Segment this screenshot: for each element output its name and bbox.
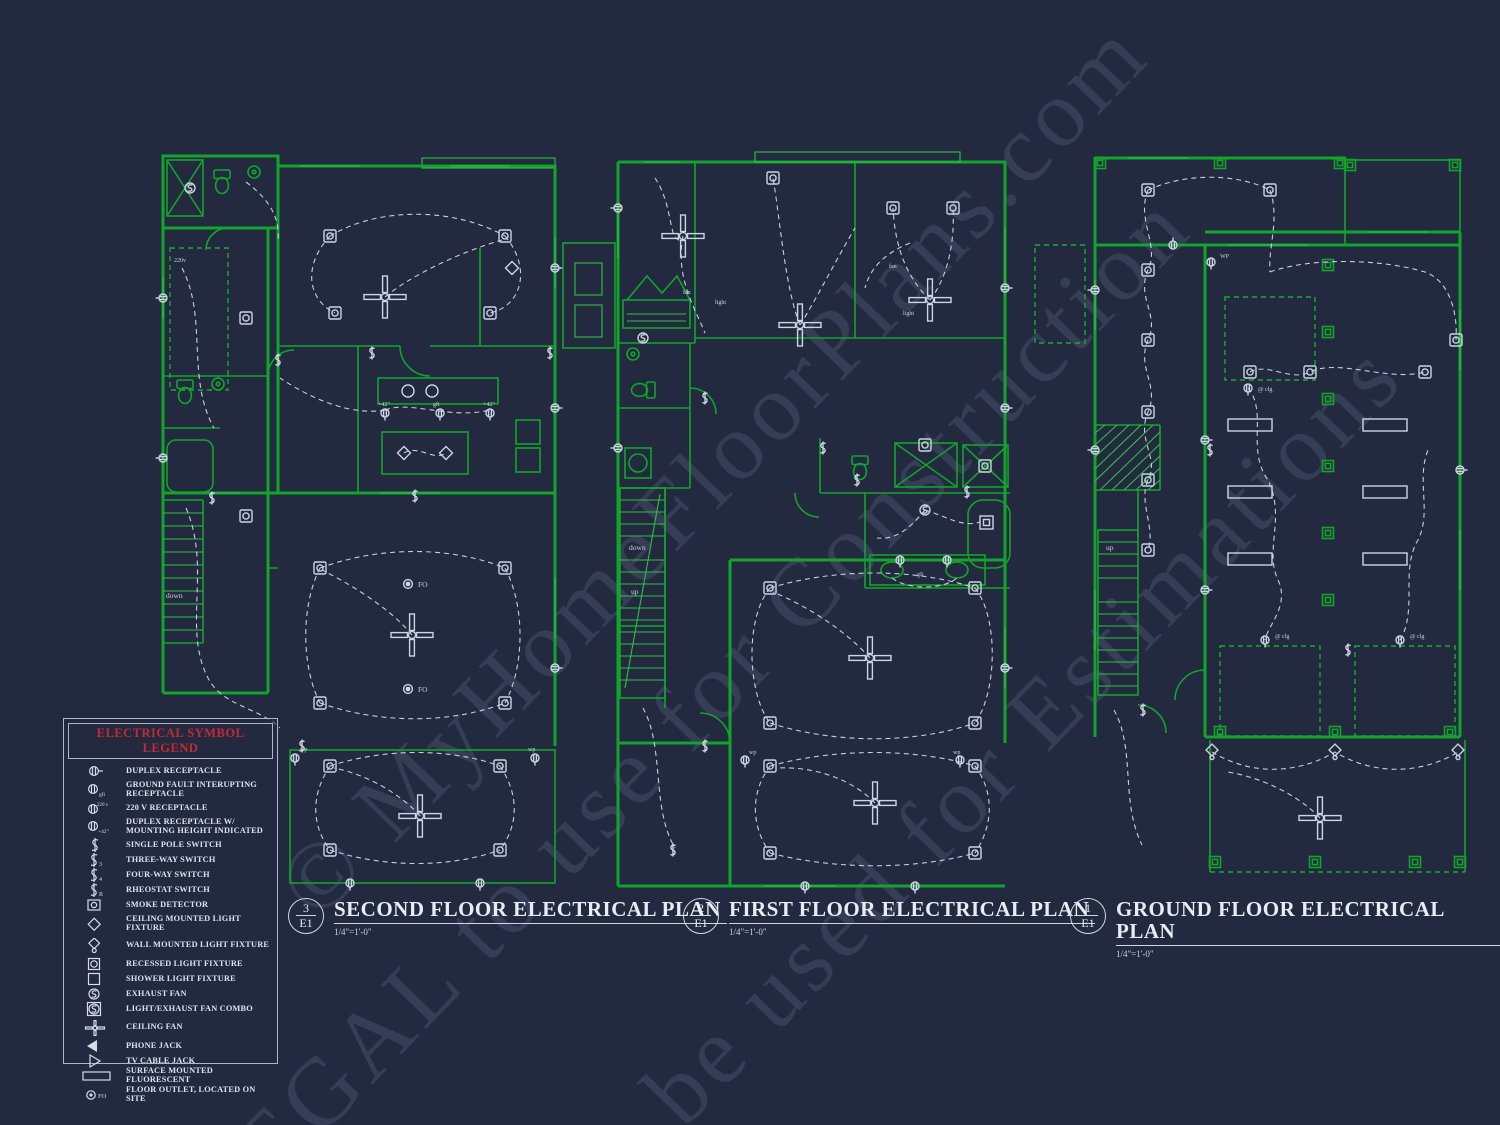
legend-item: 3 THREE-WAY SWITCH xyxy=(68,853,273,867)
legend-item: R RHEOSTAT SWITCH xyxy=(68,883,273,897)
svg-text:+42": +42" xyxy=(98,829,109,835)
legend-item: DUPLEX RECEPTACLE xyxy=(68,764,273,778)
ground-floor-wiring xyxy=(1114,177,1458,845)
legend-item: SMOKE DETECTOR xyxy=(68,898,273,912)
first-floor-plan: down up xyxy=(555,148,1015,898)
legend-item: 4 FOUR-WAY SWITCH xyxy=(68,868,273,882)
four-way-switch-icon: 4 xyxy=(68,867,126,883)
wall-light-icon xyxy=(68,938,126,954)
light-exhaust-fan-combo-icon xyxy=(68,1001,126,1017)
legend-item: EXHAUST FAN xyxy=(68,987,273,1001)
svg-text:gfi: gfi xyxy=(99,791,106,798)
220v-receptacle-icon: 220 v xyxy=(68,800,126,816)
first-floor-title-block: 2 E1 FIRST FLOOR ELECTRICAL PLAN 1/4"=1'… xyxy=(683,898,1095,937)
svg-text:FO: FO xyxy=(418,580,428,589)
svg-text:@ clg: @ clg xyxy=(1410,634,1424,640)
tv-cable-jack-icon xyxy=(68,1053,126,1069)
ground-floor-walls xyxy=(1035,158,1465,872)
svg-text:wp: wp xyxy=(953,750,960,756)
svg-text:FO: FO xyxy=(98,1093,107,1100)
exhaust-fan-icon xyxy=(68,986,126,1002)
legend-item: +42" DUPLEX RECEPTACLE W/ MOUNTING HEIGH… xyxy=(68,816,273,837)
svg-text:fan: fan xyxy=(683,289,691,296)
svg-text:220 v: 220 v xyxy=(97,803,109,808)
electrical-plan-sheet: © MyHomeFloorPlans.com ILLEGAL to use fo… xyxy=(0,0,1500,1125)
second-floor-title-block: 3 E1 SECOND FLOOR ELECTRICAL PLAN 1/4"=1… xyxy=(288,898,727,937)
ceiling-fan-icon xyxy=(68,1020,126,1036)
plan-title: SECOND FLOOR ELECTRICAL PLAN xyxy=(334,898,727,924)
legend-item: 220 v 220 V RECEPTACLE xyxy=(68,801,273,815)
legend-item: CEILING MOUNTED LIGHT FIXTURE xyxy=(68,913,273,934)
plan-scale: 1/4"=1'-0" xyxy=(729,924,1095,937)
rheostat-switch-icon: R xyxy=(68,882,126,898)
legend-item: LIGHT/EXHAUST FAN COMBO xyxy=(68,1002,273,1016)
legend-item: SINGLE POLE SWITCH xyxy=(68,838,273,852)
ground-floor-title-block: 1 E1 GROUND FLOOR ELECTRICAL PLAN 1/4"=1… xyxy=(1070,898,1500,959)
svg-text:light: light xyxy=(903,311,914,317)
svg-text:+42": +42" xyxy=(378,402,390,408)
legend-item: WALL MOUNTED LIGHT FIXTURE xyxy=(68,935,273,956)
stairs-up-label: up xyxy=(631,587,639,596)
duplex-receptacle-height-icon: +42" xyxy=(68,819,126,835)
surface-fluorescent-icon xyxy=(68,1068,126,1084)
recessed-light-icon xyxy=(68,956,126,972)
first-floor-walls xyxy=(563,152,1010,886)
legend-item: FO FLOOR OUTLET, LOCATED ON SITE xyxy=(68,1084,273,1105)
svg-text:@ clg: @ clg xyxy=(1258,387,1272,393)
svg-text:light: light xyxy=(715,300,726,306)
legend-title: ELECTRICAL SYMBOL LEGEND xyxy=(68,723,273,759)
detail-number: 3 xyxy=(296,902,316,916)
detail-bubble: 1 E1 xyxy=(1070,898,1106,934)
first-floor-labels: fan light fan light gfi wp wp xyxy=(683,263,960,756)
ground-floor-stairs: up xyxy=(1098,530,1138,695)
sheet-number: E1 xyxy=(299,916,312,930)
gfi-receptacle-icon: gfi xyxy=(68,782,126,798)
detail-number: 1 xyxy=(1078,902,1098,916)
svg-text:FO: FO xyxy=(418,685,428,694)
detail-number: 2 xyxy=(691,902,711,916)
svg-text:WP: WP xyxy=(1220,254,1230,260)
svg-text:220v: 220v xyxy=(174,258,186,264)
phone-jack-icon xyxy=(68,1038,126,1054)
first-floor-fireplace xyxy=(623,276,690,328)
svg-text:@ clg: @ clg xyxy=(1275,634,1289,640)
floor-outlet-icon: FO xyxy=(68,1087,126,1103)
svg-text:gfi: gfi xyxy=(433,401,440,408)
electrical-symbol-legend: ELECTRICAL SYMBOL LEGEND DUPLEX RECEPTAC… xyxy=(63,718,278,1064)
svg-text:gfi: gfi xyxy=(917,571,924,578)
svg-text:+42": +42" xyxy=(483,402,495,408)
legend-item: RECESSED LIGHT FIXTURE xyxy=(68,957,273,971)
svg-text:wp: wp xyxy=(300,747,307,753)
single-pole-switch-icon xyxy=(68,837,126,853)
stairs-down-label: down xyxy=(629,543,646,552)
svg-text:wp: wp xyxy=(528,747,535,753)
sheet-number: E1 xyxy=(694,916,707,930)
first-floor-symbols xyxy=(611,172,1013,894)
plan-title: GROUND FLOOR ELECTRICAL PLAN xyxy=(1116,898,1500,946)
three-way-switch-icon: 3 xyxy=(68,852,126,868)
ceiling-light-icon xyxy=(68,916,126,932)
legend-item: CEILING FAN xyxy=(68,1017,273,1038)
legend-item: SHOWER LIGHT FIXTURE xyxy=(68,972,273,986)
stairs-down-label: down xyxy=(166,591,183,600)
legend-item: SURFACE MOUNTED FLUORESCENT xyxy=(68,1069,273,1083)
sheet-number: E1 xyxy=(1081,916,1094,930)
shower-light-icon xyxy=(68,971,126,987)
plan-scale: 1/4"=1'-0" xyxy=(334,924,727,937)
second-floor-labels: FO FO 220v +42" gfi +42" wp wp xyxy=(174,258,535,753)
detail-bubble: 3 E1 xyxy=(288,898,324,934)
plan-title: FIRST FLOOR ELECTRICAL PLAN xyxy=(729,898,1095,924)
smoke-detector-icon xyxy=(68,897,126,913)
ground-floor-plan: up xyxy=(1028,150,1473,900)
legend-item: PHONE JACK xyxy=(68,1039,273,1053)
ground-floor-labels: WP @ clg @ clg @ clg xyxy=(1220,254,1424,640)
second-floor-fixtures xyxy=(167,160,540,492)
svg-text:fan: fan xyxy=(889,263,897,270)
first-floor-stairs: down up xyxy=(620,488,665,698)
stairs-up-label: up xyxy=(1106,543,1114,552)
duplex-receptacle-icon xyxy=(68,763,126,779)
legend-item: gfi GROUND FAULT INTERUPTING RECEPTACLE xyxy=(68,779,273,800)
svg-text:wp: wp xyxy=(749,750,756,756)
detail-bubble: 2 E1 xyxy=(683,898,719,934)
plan-scale: 1/4"=1'-0" xyxy=(1116,946,1500,959)
